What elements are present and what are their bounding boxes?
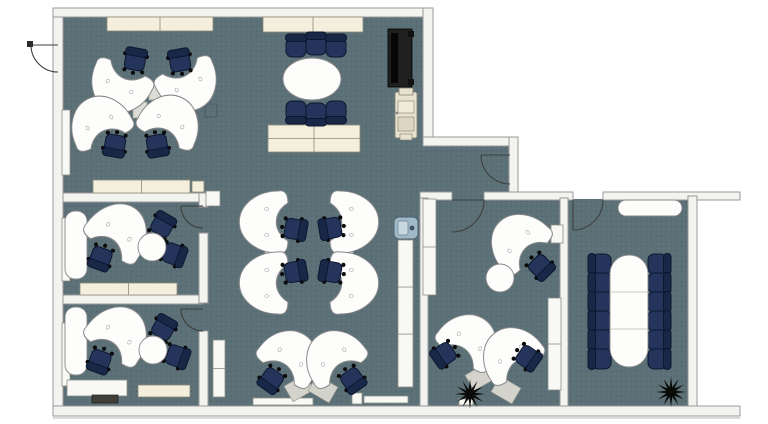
floor-plan: Office floor plan — [0, 0, 768, 424]
wall — [63, 193, 203, 202]
wall — [603, 192, 740, 200]
cabinet — [192, 181, 204, 192]
side-chair — [588, 254, 611, 275]
cabinet — [138, 385, 190, 397]
wall — [509, 137, 518, 194]
shelf — [364, 396, 408, 403]
side-chair — [326, 34, 347, 57]
round-table — [486, 264, 514, 292]
side-chair — [588, 311, 611, 332]
desk-return — [65, 211, 87, 279]
wall — [688, 196, 697, 410]
water-cooler — [394, 217, 418, 239]
floor-plan-svg — [0, 0, 768, 424]
shelf — [62, 110, 70, 175]
bench — [92, 395, 118, 403]
side-chair — [648, 349, 671, 370]
wall — [53, 8, 433, 17]
door-hinge — [27, 41, 33, 47]
desk-return — [65, 307, 87, 375]
conference-table — [610, 255, 648, 367]
shelf — [67, 380, 127, 396]
wall — [53, 406, 740, 416]
shelf — [398, 240, 413, 387]
shelf — [352, 393, 362, 404]
round-table — [139, 336, 167, 364]
side-chair — [588, 273, 611, 294]
side-chair — [286, 34, 307, 57]
tv-display — [388, 29, 414, 87]
side-chair — [286, 101, 307, 124]
wall — [53, 8, 63, 416]
wall — [199, 331, 208, 406]
side-chair — [588, 292, 611, 313]
credenza — [618, 200, 682, 216]
side-chair — [306, 32, 327, 55]
side-chair — [648, 254, 671, 275]
side-chair — [306, 103, 327, 126]
side-chair — [648, 311, 671, 332]
side-chair — [648, 292, 671, 313]
side-chair — [326, 101, 347, 124]
side-chair — [648, 273, 671, 294]
wall — [199, 233, 208, 303]
shelf — [206, 191, 220, 206]
printer — [395, 88, 417, 140]
side-chair — [648, 330, 671, 351]
round-table — [138, 233, 166, 261]
oval-meeting-table — [283, 58, 341, 100]
side-chair — [588, 330, 611, 351]
wall — [423, 137, 518, 146]
wall — [423, 8, 433, 144]
wall — [63, 295, 203, 304]
shelf — [253, 398, 313, 405]
side-chair — [588, 349, 611, 370]
